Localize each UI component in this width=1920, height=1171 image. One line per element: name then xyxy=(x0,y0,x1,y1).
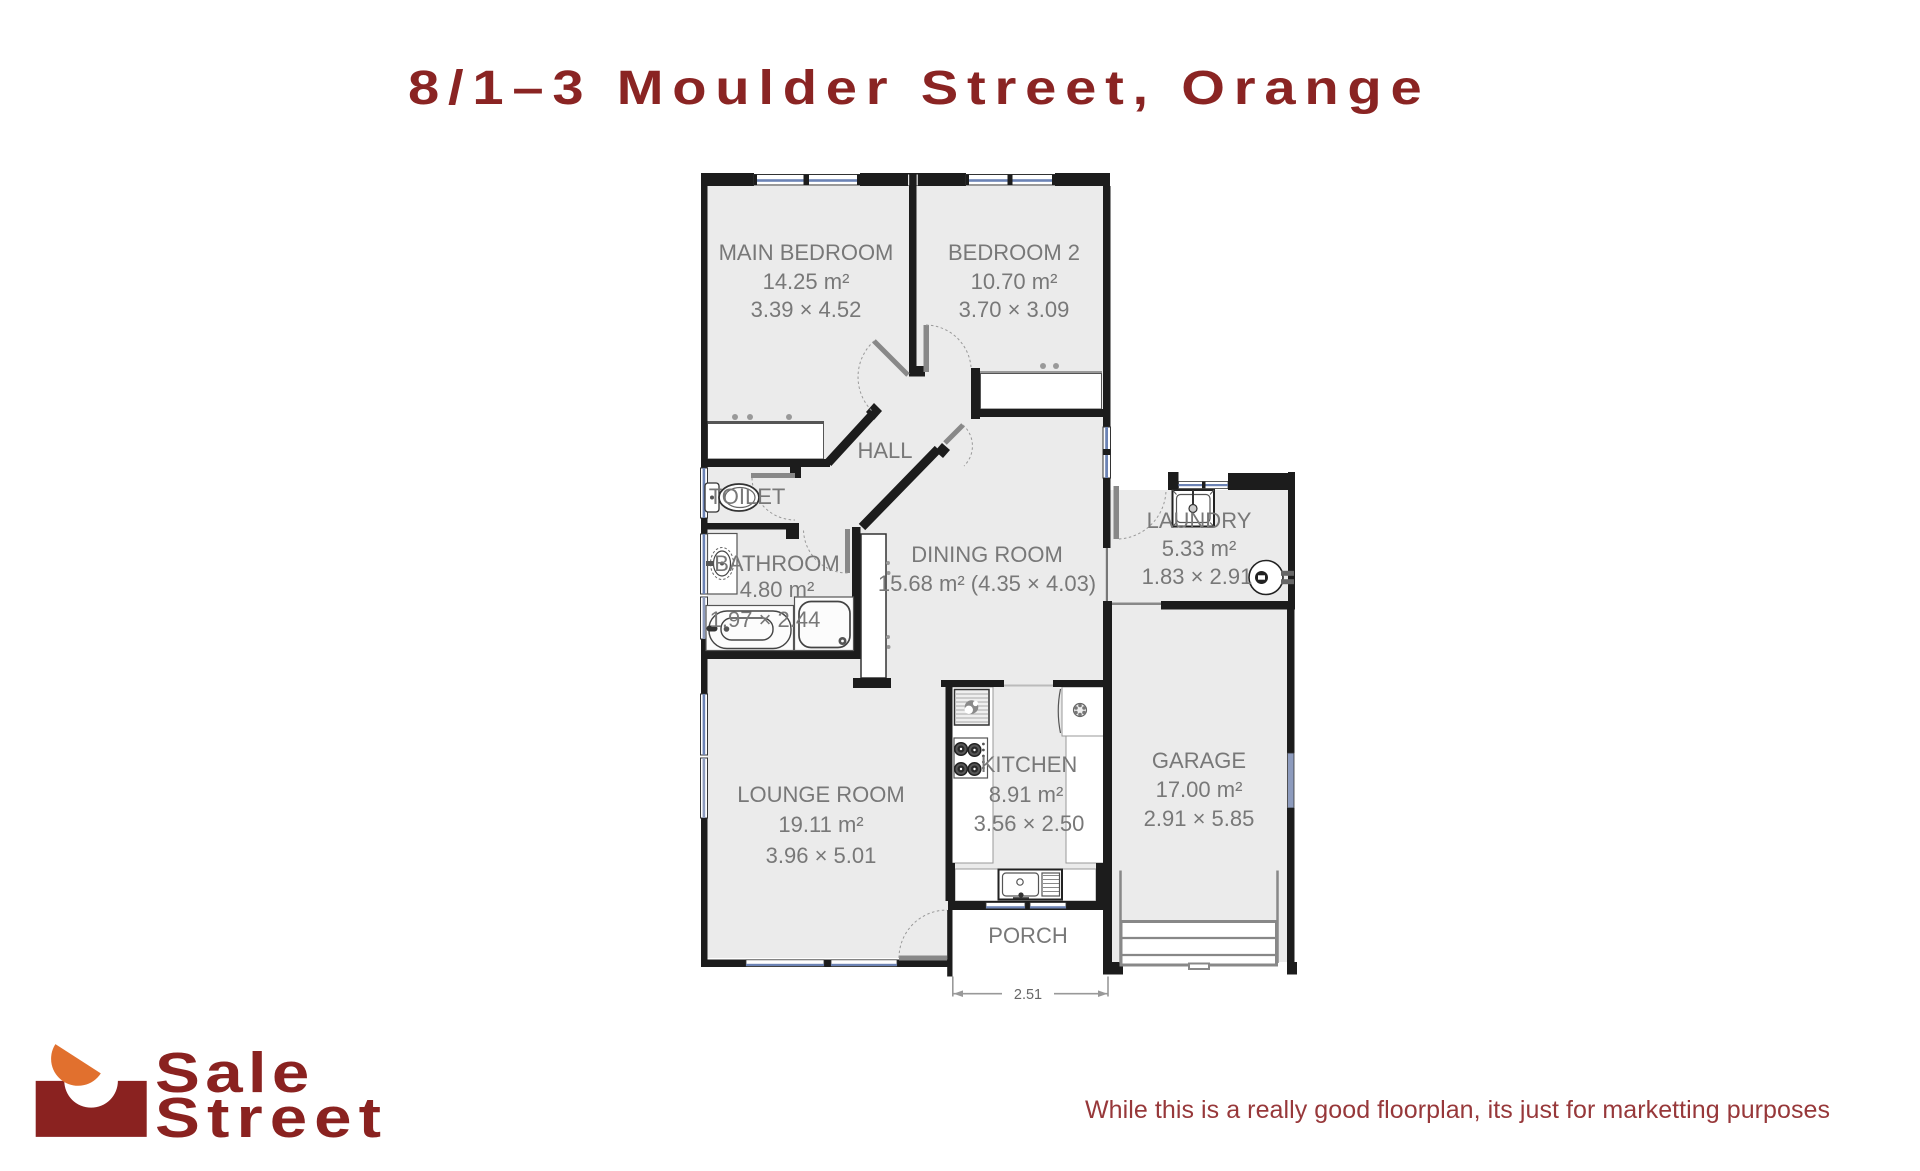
svg-text:3.96 × 5.01: 3.96 × 5.01 xyxy=(766,843,877,868)
svg-text:1.83 × 2.91: 1.83 × 2.91 xyxy=(1142,564,1253,589)
svg-text:DINING ROOM: DINING ROOM xyxy=(911,542,1063,567)
svg-text:10.70 m²: 10.70 m² xyxy=(971,269,1058,294)
svg-text:PORCH: PORCH xyxy=(988,923,1067,948)
svg-text:3.56 × 2.50: 3.56 × 2.50 xyxy=(974,811,1085,836)
svg-text:2.51: 2.51 xyxy=(1014,987,1042,1003)
svg-text:2.91 × 5.85: 2.91 × 5.85 xyxy=(1144,806,1255,831)
svg-text:3.70 × 3.09: 3.70 × 3.09 xyxy=(959,297,1070,322)
svg-text:8.91 m²: 8.91 m² xyxy=(989,782,1064,807)
svg-text:KITCHEN: KITCHEN xyxy=(981,752,1078,777)
svg-text:BEDROOM 2: BEDROOM 2 xyxy=(948,240,1080,265)
svg-text:While this is a really good fl: While this is a really good floorplan, i… xyxy=(1085,1096,1830,1124)
svg-text:5.33 m²: 5.33 m² xyxy=(1162,536,1237,561)
svg-text:Street: Street xyxy=(155,1087,388,1150)
svg-text:3.39 × 4.52: 3.39 × 4.52 xyxy=(751,297,862,322)
svg-text:1.97 × 2.44: 1.97 × 2.44 xyxy=(710,607,821,632)
svg-text:BATHROOM: BATHROOM xyxy=(714,551,839,576)
svg-text:4.80 m²: 4.80 m² xyxy=(740,577,815,602)
svg-text:LAUNDRY: LAUNDRY xyxy=(1147,508,1252,533)
svg-text:19.11 m²: 19.11 m² xyxy=(778,812,863,837)
svg-text:14.25 m²: 14.25 m² xyxy=(763,269,850,294)
svg-text:HALL: HALL xyxy=(857,438,912,463)
svg-text:MAIN BEDROOM: MAIN BEDROOM xyxy=(719,240,894,265)
svg-text:17.00 m²: 17.00 m² xyxy=(1156,777,1243,802)
svg-text:15.68 m² (4.35 × 4.03): 15.68 m² (4.35 × 4.03) xyxy=(878,571,1096,596)
svg-text:GARAGE: GARAGE xyxy=(1152,748,1246,773)
svg-text:8/1–3 Moulder Street, Orange: 8/1–3 Moulder Street, Orange xyxy=(408,62,1431,115)
svg-text:TOILET: TOILET xyxy=(709,484,786,509)
svg-text:LOUNGE ROOM: LOUNGE ROOM xyxy=(737,782,904,807)
